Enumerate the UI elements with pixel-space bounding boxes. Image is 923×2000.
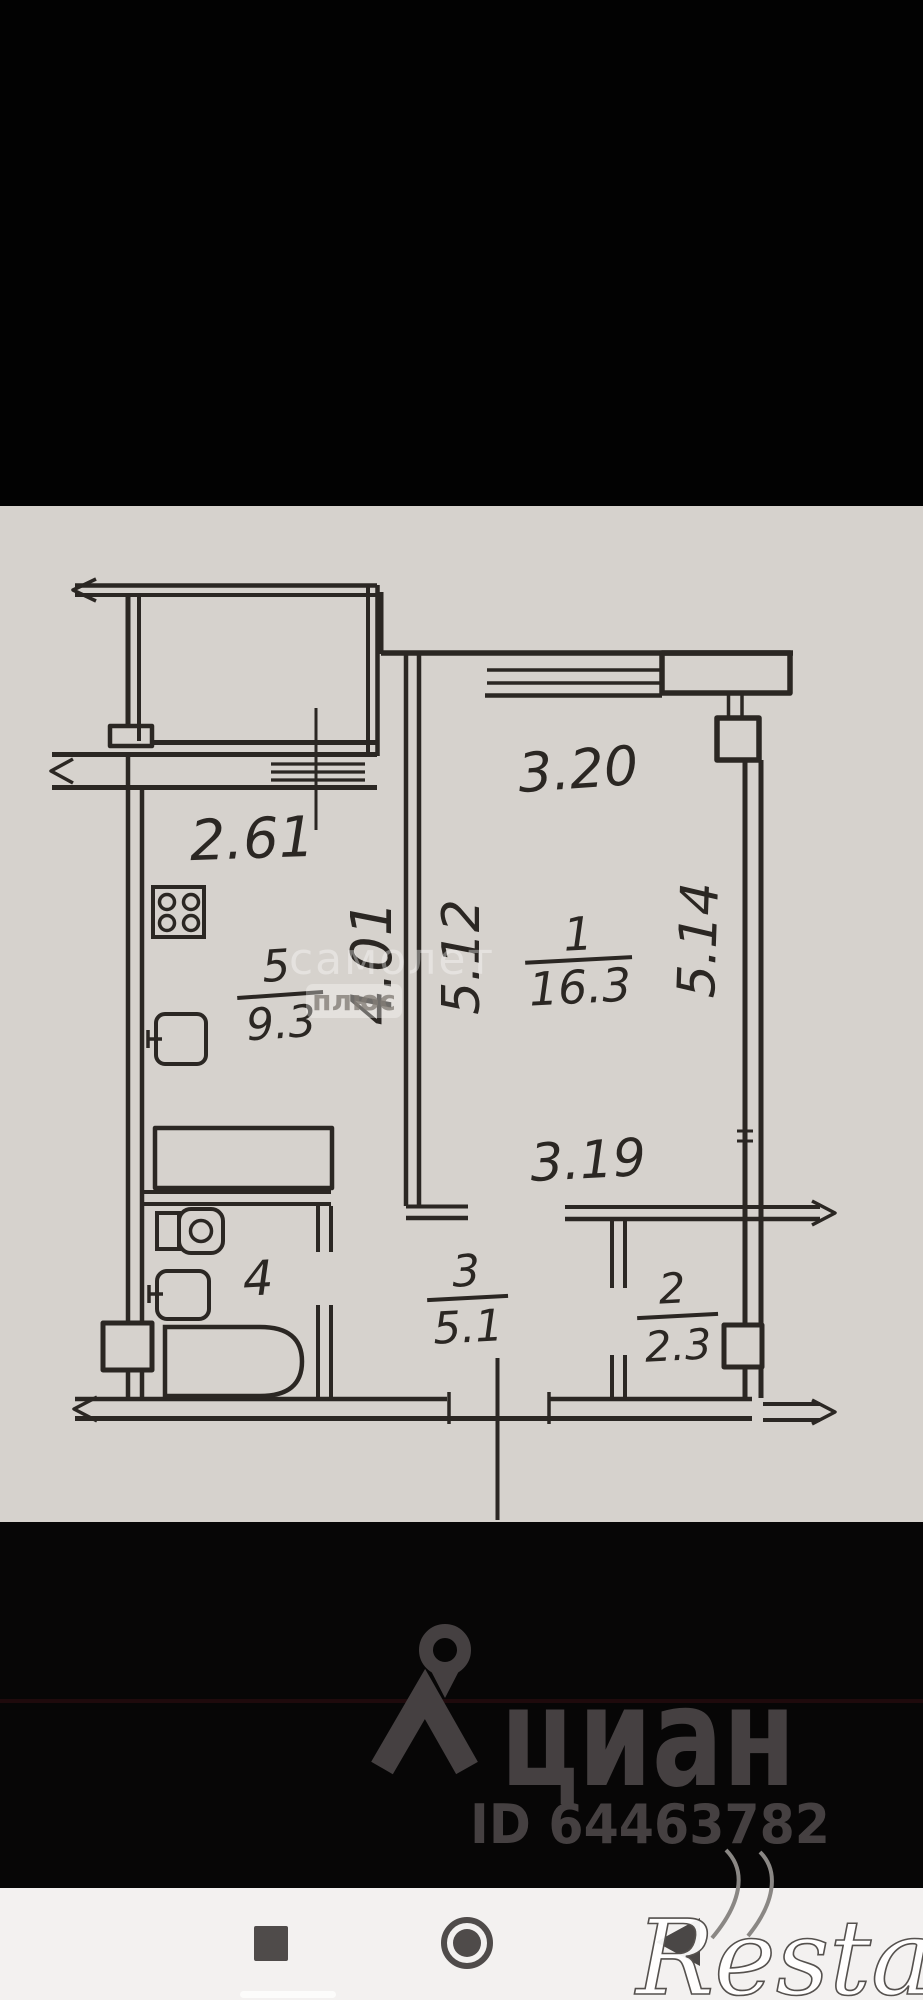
dim-kitchen-width: 2.61: [189, 805, 316, 874]
room3-number: 3: [451, 1245, 482, 1297]
room2-number: 2: [657, 1263, 686, 1313]
dim-room1-width-top: 3.20: [516, 734, 640, 805]
dim-room1-width-bottom: 3.19: [529, 1128, 648, 1194]
cian-listing-id: ID 64463782: [470, 1793, 830, 1856]
wall-pier: [103, 1323, 152, 1370]
wall-pier: [724, 1325, 762, 1367]
room4-number: 4: [241, 1250, 274, 1308]
room1-number: 1: [562, 906, 594, 961]
restate-watermark-text: Restate: [634, 1897, 923, 2000]
room3-area: 5.1: [432, 1300, 505, 1355]
home-indicator: [240, 1991, 336, 1998]
letterbox-top: [0, 0, 923, 506]
samolet-watermark-box-text: плюс: [312, 984, 396, 1017]
room1-area: 16.3: [527, 957, 632, 1016]
dim-room1-length-right: 5.14: [667, 881, 731, 999]
samolet-watermark-text: самолет: [289, 934, 495, 985]
room2-area: 2.3: [643, 1319, 712, 1371]
recents-square-button[interactable]: [254, 1926, 288, 1961]
room5-number: 5: [260, 940, 291, 993]
screenshot-root: 2.61 3.20 3.19 4.01 5.12 5.14 1 16.3 5 9…: [0, 0, 923, 2000]
